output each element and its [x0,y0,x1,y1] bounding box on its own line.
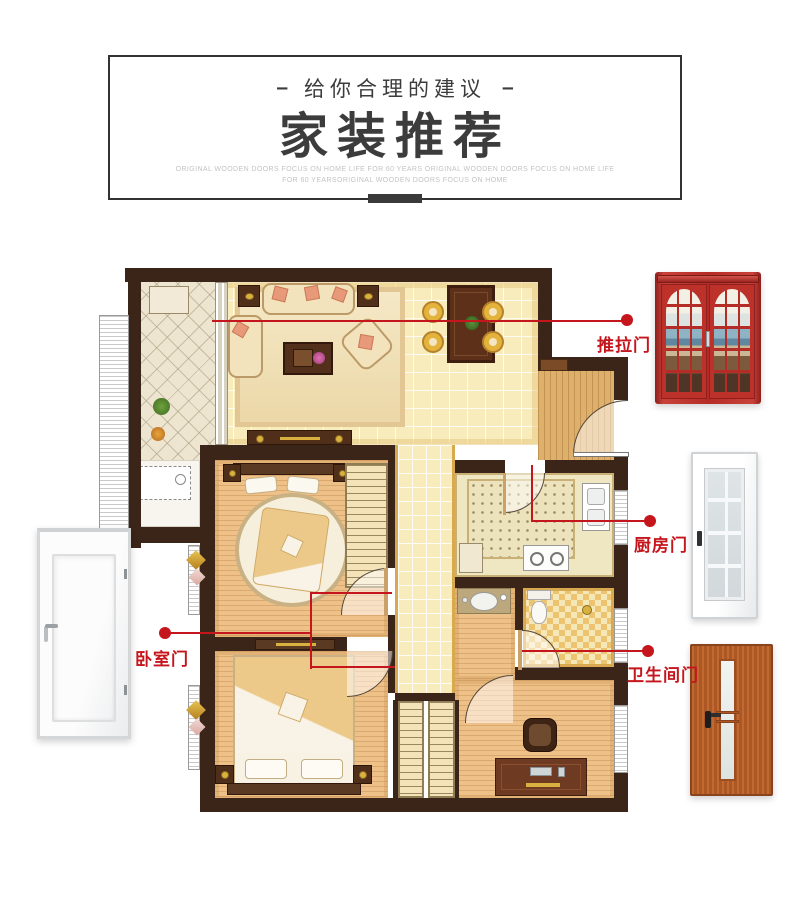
nightstand [215,765,234,784]
round-bed [235,493,349,607]
bed2-headboard [227,783,361,795]
kitchen-door-leaf [503,473,506,515]
wall-hallway-left-upper [388,460,395,568]
wall-bottom [200,798,628,812]
callout-line-bedroom-door-top [310,592,392,594]
washing-machine-drum [175,474,186,485]
wall-balcony-left [128,268,141,548]
wall-kitchen-bath-divider [455,577,628,588]
callout-label-bathroom-door: 卫生间门 [627,661,699,686]
callout-line-kitchen-door-v [531,465,533,522]
bed1-pillow [244,475,277,494]
bedroom-door-panel [52,554,115,721]
study-window [614,705,628,773]
toilet-tank [527,590,551,600]
dining-chair [482,331,504,353]
closet-column [398,700,424,798]
callout-dot-sliding-door [621,314,633,326]
callout-line-sliding-door [212,320,628,322]
side-table-right [357,285,379,307]
bed1-pillow [286,475,319,494]
toilet-bowl [531,601,547,624]
plant-pot [153,398,170,415]
callout-label-kitchen-door: 厨房门 [634,531,688,556]
page-title: 家装推荐 [110,97,680,168]
wall-kitchen-top-right [545,460,628,473]
desk-chair [523,718,557,752]
nightstand [223,464,241,482]
bed2 [233,655,355,787]
entry-door-leaf [573,452,629,457]
wall-kitchen-top-left [455,460,505,473]
hallway-floor [395,445,455,693]
bedroom2-dresser [255,639,335,650]
callout-line-bathroom-door [522,650,648,652]
wall-wc-left [515,588,523,630]
bathroom-door-product-image [690,644,773,796]
bedroom-door-lock-plate [44,626,48,642]
callout-label-sliding-door: 推拉门 [597,331,651,356]
callout-dot-bathroom-door [642,645,654,657]
sliding-door-leaf-right [709,284,755,399]
kitchen-door-glass-grid [705,469,744,600]
sliding-door-rail [657,275,759,283]
bathroom-door-lock-plate [711,713,721,717]
balcony-sliding-door [215,282,228,445]
bedroom-door-hinge [124,685,127,695]
wall-hallway-end [395,693,455,701]
nightstand [353,765,372,784]
coffee-table [283,342,333,375]
header-accent-bar [368,194,422,203]
balcony-cabinet [149,286,189,314]
wc-window [614,608,628,663]
desk [495,758,587,796]
sliding-door-handle [706,331,710,347]
stove [523,545,569,571]
bedroom-door-hinge [124,569,127,579]
callout-dot-bedroom-door [159,627,171,639]
header-box: – 给你合理的建议 – 家装推荐 ORIGINAL WOODEN DOORS F… [108,55,682,200]
armchair-pillow [358,334,374,350]
sliding-door-product-image [655,272,761,404]
sliding-door-leaf-left [661,284,707,399]
plant-pot-small [151,427,165,441]
kitchen-door-product-image [691,452,758,619]
wall-closet-left [393,700,398,798]
header-subtitle: ORIGINAL WOODEN DOORS FOCUS ON HOME LIFE… [110,164,680,186]
side-table-left [238,285,260,307]
kitchen-door-handle [697,531,702,546]
wall-wc-study-divider [515,667,628,680]
balcony-window [99,315,129,530]
shower-fixture [582,605,592,615]
bathroom-door-trim-bar [716,720,740,723]
wall-top [125,268,552,282]
callout-dot-kitchen-door [644,515,656,527]
wall-bedroom1-top [200,445,395,460]
tv-stand [247,430,352,445]
wall-left-lower [200,445,215,800]
subtitle-line-2: FOR 60 YEARSORIGINAL WOODEN DOORS FOCUS … [110,175,680,186]
callout-line-bedroom-door-main [164,632,312,634]
kitchen-window [614,490,628,545]
promo-poster: – 给你合理的建议 – 家装推荐 ORIGINAL WOODEN DOORS F… [0,0,790,909]
callout-line-bedroom-door-v [310,592,312,669]
shoe-cabinet [540,359,568,371]
callout-line-kitchen-door-h [531,520,650,522]
floor-plan [95,265,640,821]
dining-chair [422,331,444,353]
bedroom-door-product-image [37,528,131,739]
bedroom-door-handle [45,624,58,628]
closet-column [428,700,455,798]
subtitle-line-1: ORIGINAL WOODEN DOORS FOCUS ON HOME LIFE… [110,164,680,175]
bathroom-sink-counter [457,588,511,614]
callout-label-bedroom-door: 卧室门 [135,645,189,670]
wall-closet-right [455,700,459,798]
kitchen-sink [582,483,610,531]
fridge [459,543,483,573]
sofa-pillow [304,285,320,301]
callout-line-bedroom-door-bottom [310,666,395,668]
